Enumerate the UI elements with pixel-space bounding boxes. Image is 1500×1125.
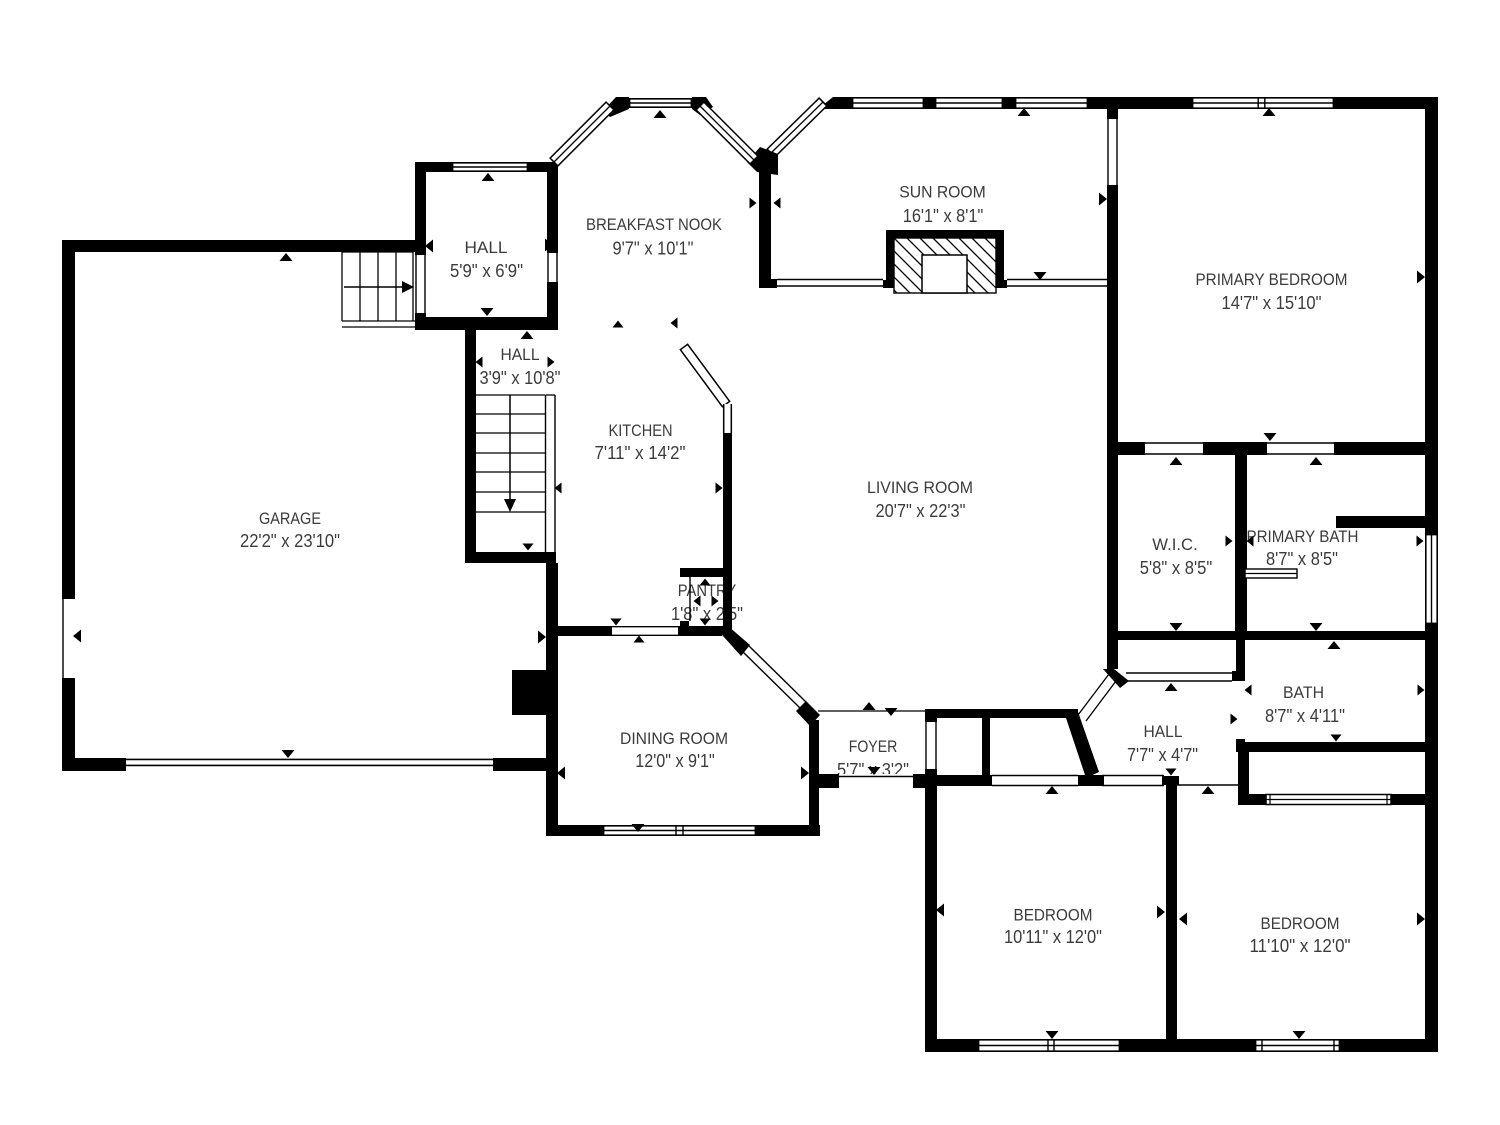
svg-text:11'10" x 12'0": 11'10" x 12'0" [1250, 936, 1351, 956]
svg-text:8'7" x 4'11": 8'7" x 4'11" [1265, 706, 1345, 726]
svg-text:14'7" x 15'10": 14'7" x 15'10" [1222, 293, 1322, 313]
svg-text:20'7" x 22'3": 20'7" x 22'3" [876, 501, 966, 521]
svg-text:PRIMARY BATH: PRIMARY BATH [1247, 527, 1359, 546]
svg-text:8'7" x 8'5": 8'7" x 8'5" [1266, 549, 1338, 569]
svg-text:FOYER: FOYER [849, 737, 898, 756]
svg-text:16'1" x 8'1": 16'1" x 8'1" [903, 206, 984, 226]
svg-text:12'0" x 9'1": 12'0" x 9'1" [635, 751, 715, 771]
svg-text:BATH: BATH [1283, 683, 1324, 702]
svg-text:LIVING ROOM: LIVING ROOM [867, 478, 973, 497]
svg-text:GARAGE: GARAGE [259, 509, 321, 528]
svg-text:KITCHEN: KITCHEN [609, 421, 673, 440]
svg-text:10'11" x 12'0": 10'11" x 12'0" [1004, 927, 1102, 947]
svg-text:3'9" x 10'8": 3'9" x 10'8" [480, 368, 561, 388]
svg-text:DINING ROOM: DINING ROOM [620, 729, 728, 748]
svg-text:7'11" x 14'2": 7'11" x 14'2" [595, 443, 686, 463]
svg-text:5'9" x 6'9": 5'9" x 6'9" [450, 261, 523, 281]
svg-text:PRIMARY BEDROOM: PRIMARY BEDROOM [1196, 270, 1348, 289]
svg-text:SUN ROOM: SUN ROOM [899, 183, 986, 202]
svg-text:22'2" x 23'10": 22'2" x 23'10" [240, 531, 340, 551]
svg-text:9'7" x 10'1": 9'7" x 10'1" [613, 239, 694, 259]
svg-text:BEDROOM: BEDROOM [1261, 914, 1340, 933]
svg-text:HALL: HALL [1144, 722, 1183, 741]
svg-text:W.I.C.: W.I.C. [1152, 535, 1198, 554]
svg-text:7'7" x 4'7": 7'7" x 4'7" [1127, 745, 1198, 765]
svg-text:5'8" x 8'5": 5'8" x 8'5" [1140, 558, 1213, 578]
svg-text:BEDROOM: BEDROOM [1014, 906, 1093, 925]
svg-text:HALL: HALL [465, 238, 508, 257]
svg-text:HALL: HALL [501, 345, 540, 364]
svg-text:BREAKFAST NOOK: BREAKFAST NOOK [586, 215, 723, 234]
